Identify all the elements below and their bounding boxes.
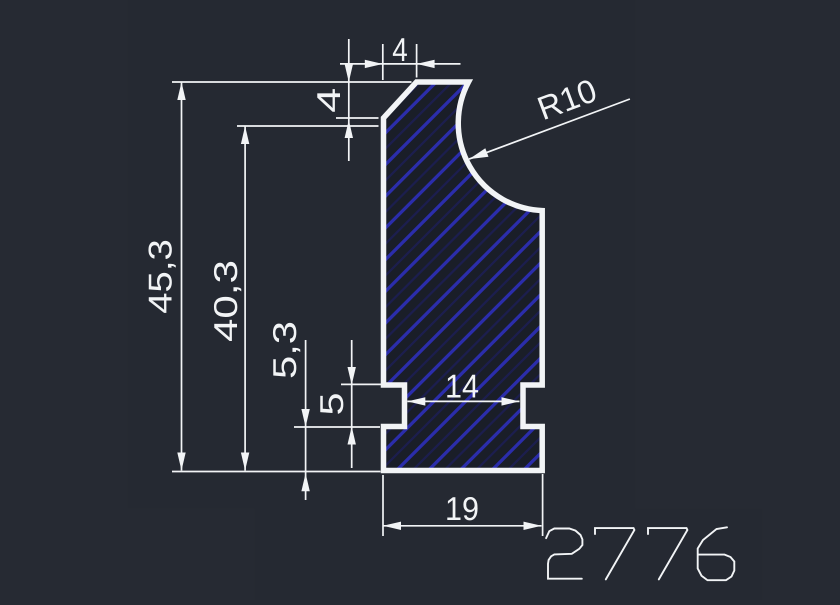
svg-text:14: 14 (445, 368, 479, 405)
svg-text:45,3: 45,3 (142, 239, 179, 314)
svg-text:40,3: 40,3 (207, 260, 244, 342)
svg-text:5: 5 (313, 393, 350, 416)
svg-text:19: 19 (445, 490, 479, 527)
svg-text:4: 4 (392, 31, 408, 68)
svg-text:5,3: 5,3 (266, 321, 303, 379)
svg-text:4: 4 (310, 88, 347, 113)
